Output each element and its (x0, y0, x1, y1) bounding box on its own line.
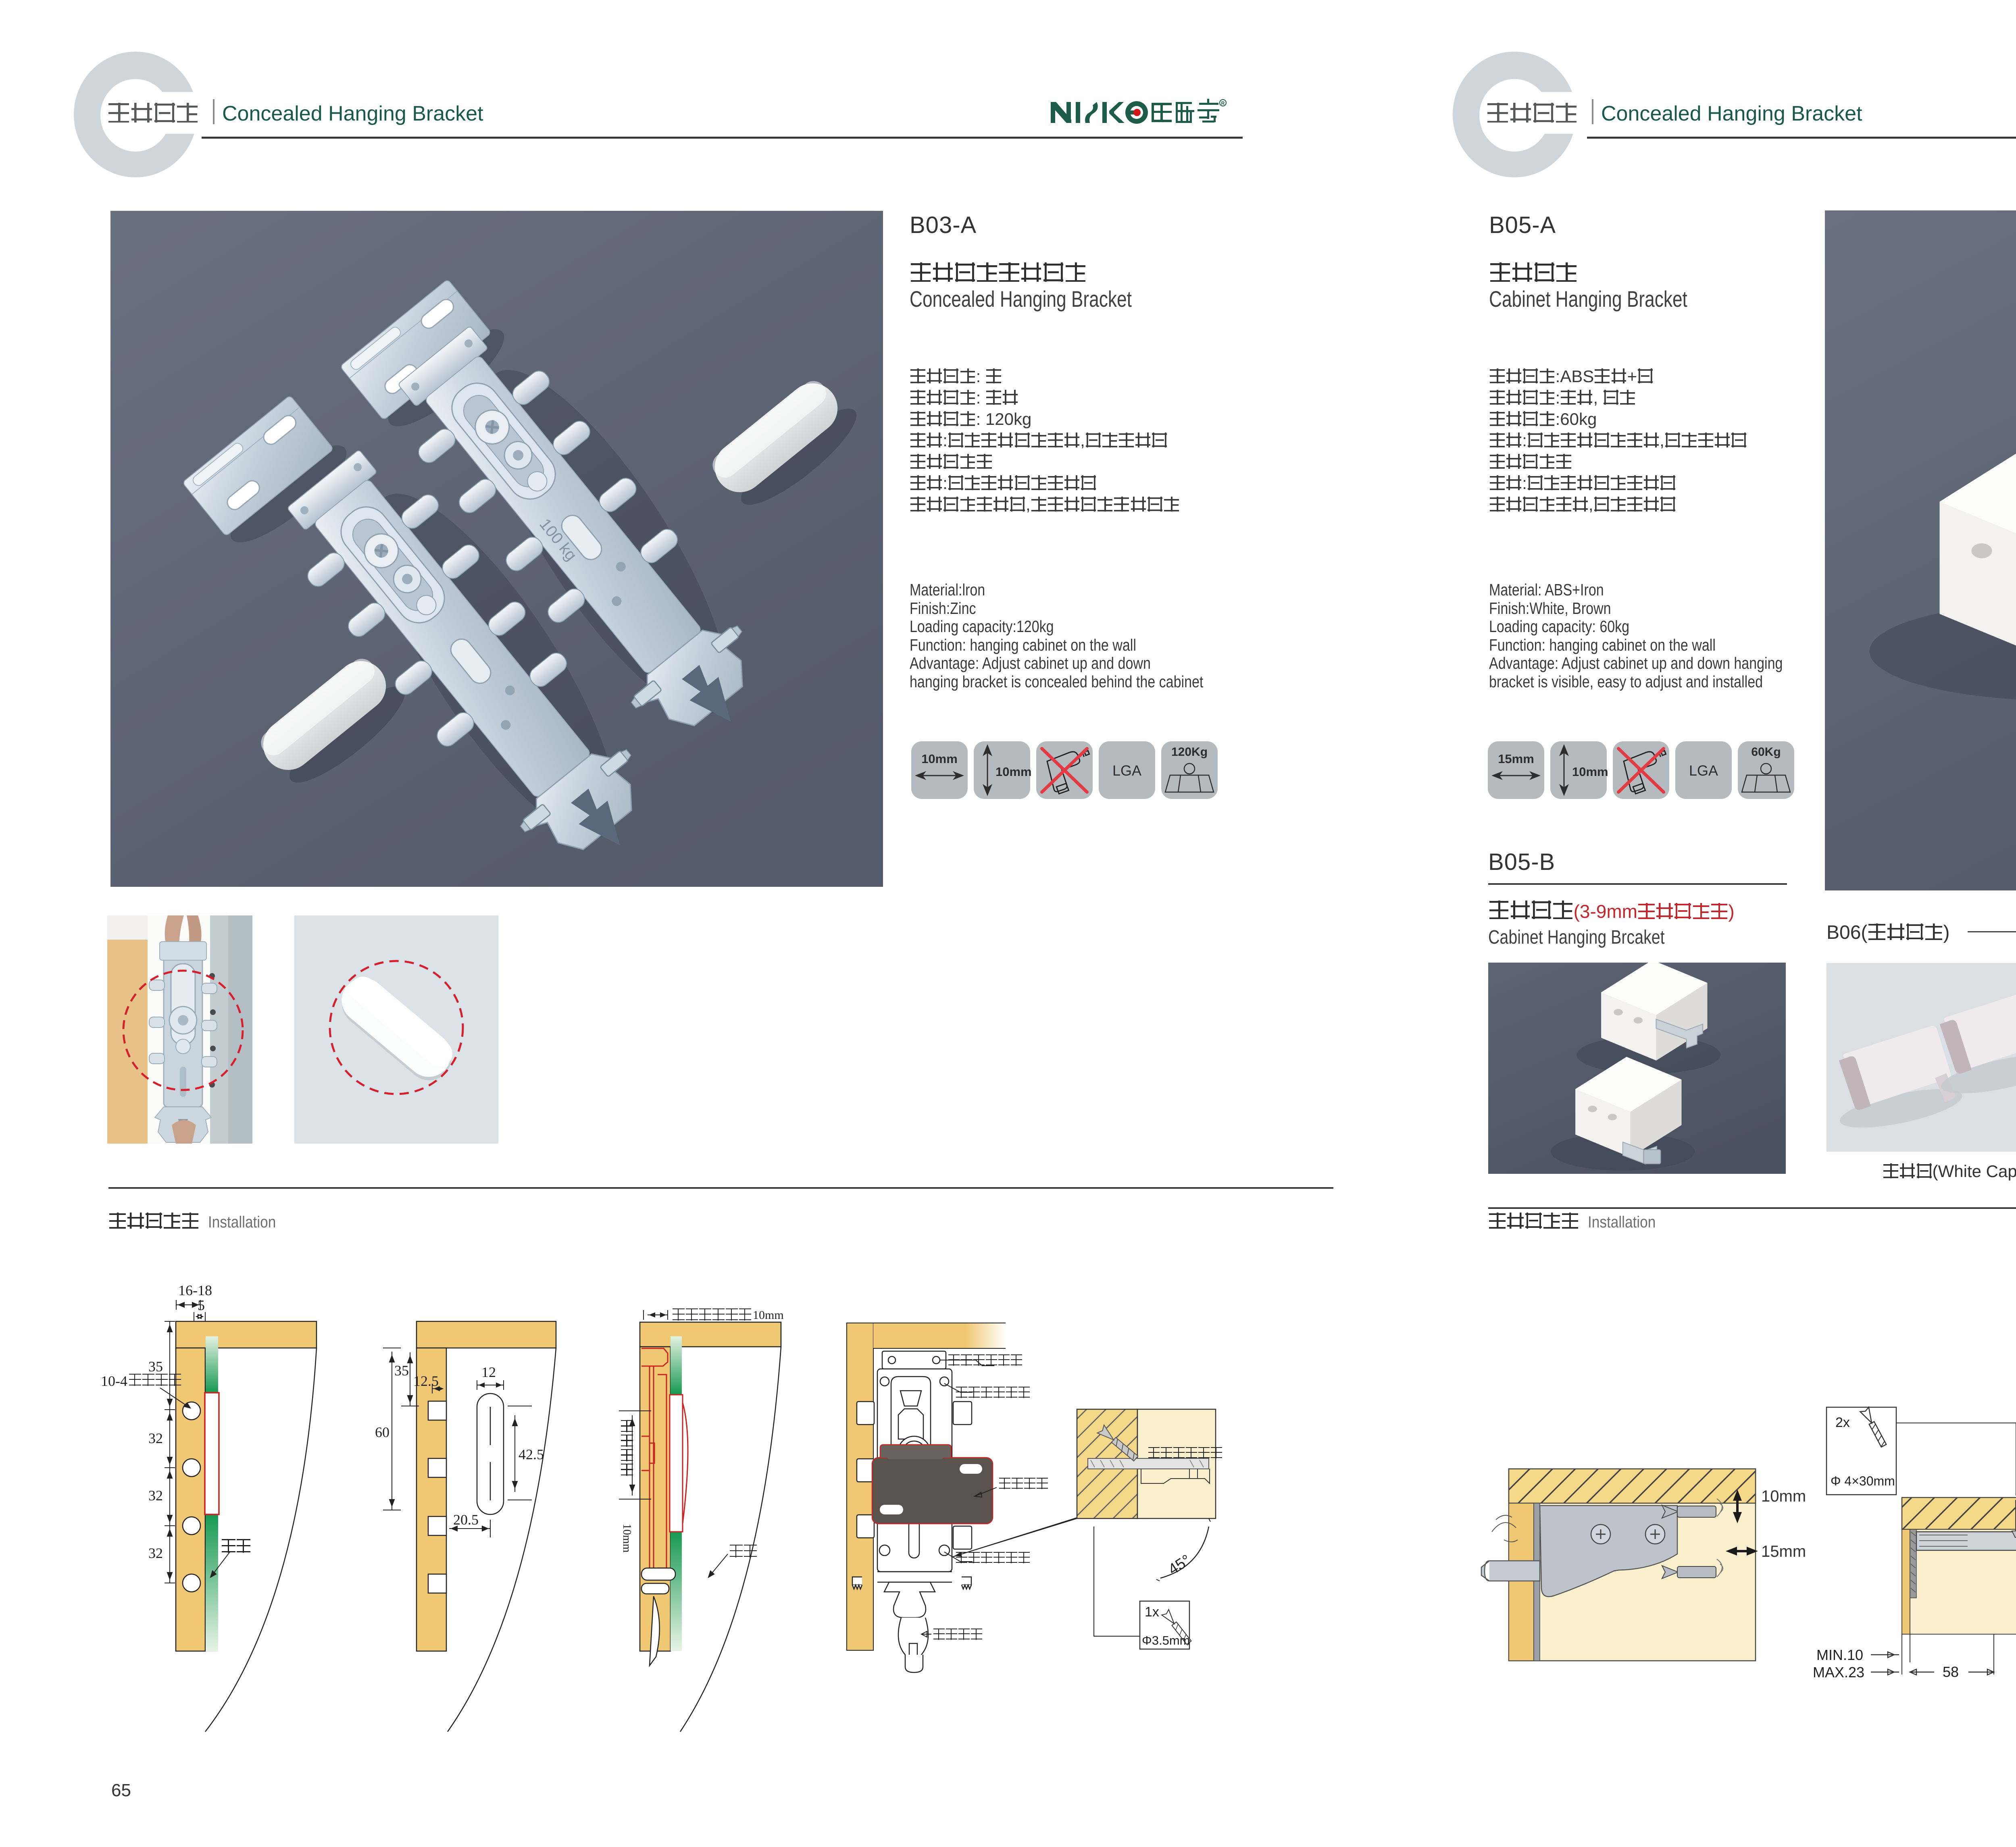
svg-text:Φ 4×30mm: Φ 4×30mm (1831, 1474, 1895, 1488)
svg-text:10-4: 10-4 (101, 1373, 127, 1389)
svg-text:32: 32 (148, 1430, 163, 1446)
svg-text:35: 35 (394, 1362, 409, 1379)
svg-text:12: 12 (481, 1364, 496, 1380)
svg-text:MAX.23: MAX.23 (1813, 1664, 1864, 1681)
svg-text:42.5: 42.5 (519, 1446, 544, 1462)
svg-text:10mm: 10mm (621, 1524, 633, 1553)
svg-text:60: 60 (375, 1424, 389, 1440)
svg-text:32: 32 (148, 1545, 163, 1561)
svg-text:10mm: 10mm (753, 1308, 784, 1322)
svg-text:Φ3.5mm: Φ3.5mm (1142, 1633, 1190, 1647)
svg-text:45°: 45° (1165, 1552, 1194, 1579)
svg-text:16-18: 16-18 (178, 1282, 212, 1298)
svg-text:58: 58 (1943, 1664, 1959, 1680)
svg-text:35: 35 (148, 1358, 163, 1375)
svg-text:R: R (1221, 100, 1225, 106)
svg-text:MIN.10: MIN.10 (1816, 1647, 1863, 1663)
svg-text:20.5: 20.5 (453, 1512, 479, 1528)
svg-text:32: 32 (148, 1487, 163, 1504)
svg-text:10mm: 10mm (1761, 1487, 1806, 1505)
svg-text:15mm: 15mm (1761, 1543, 1806, 1560)
svg-text:12.5: 12.5 (413, 1373, 439, 1389)
svg-text:1x: 1x (1145, 1604, 1159, 1620)
svg-text:2x: 2x (1835, 1415, 1850, 1430)
svg-text:5: 5 (198, 1297, 205, 1313)
